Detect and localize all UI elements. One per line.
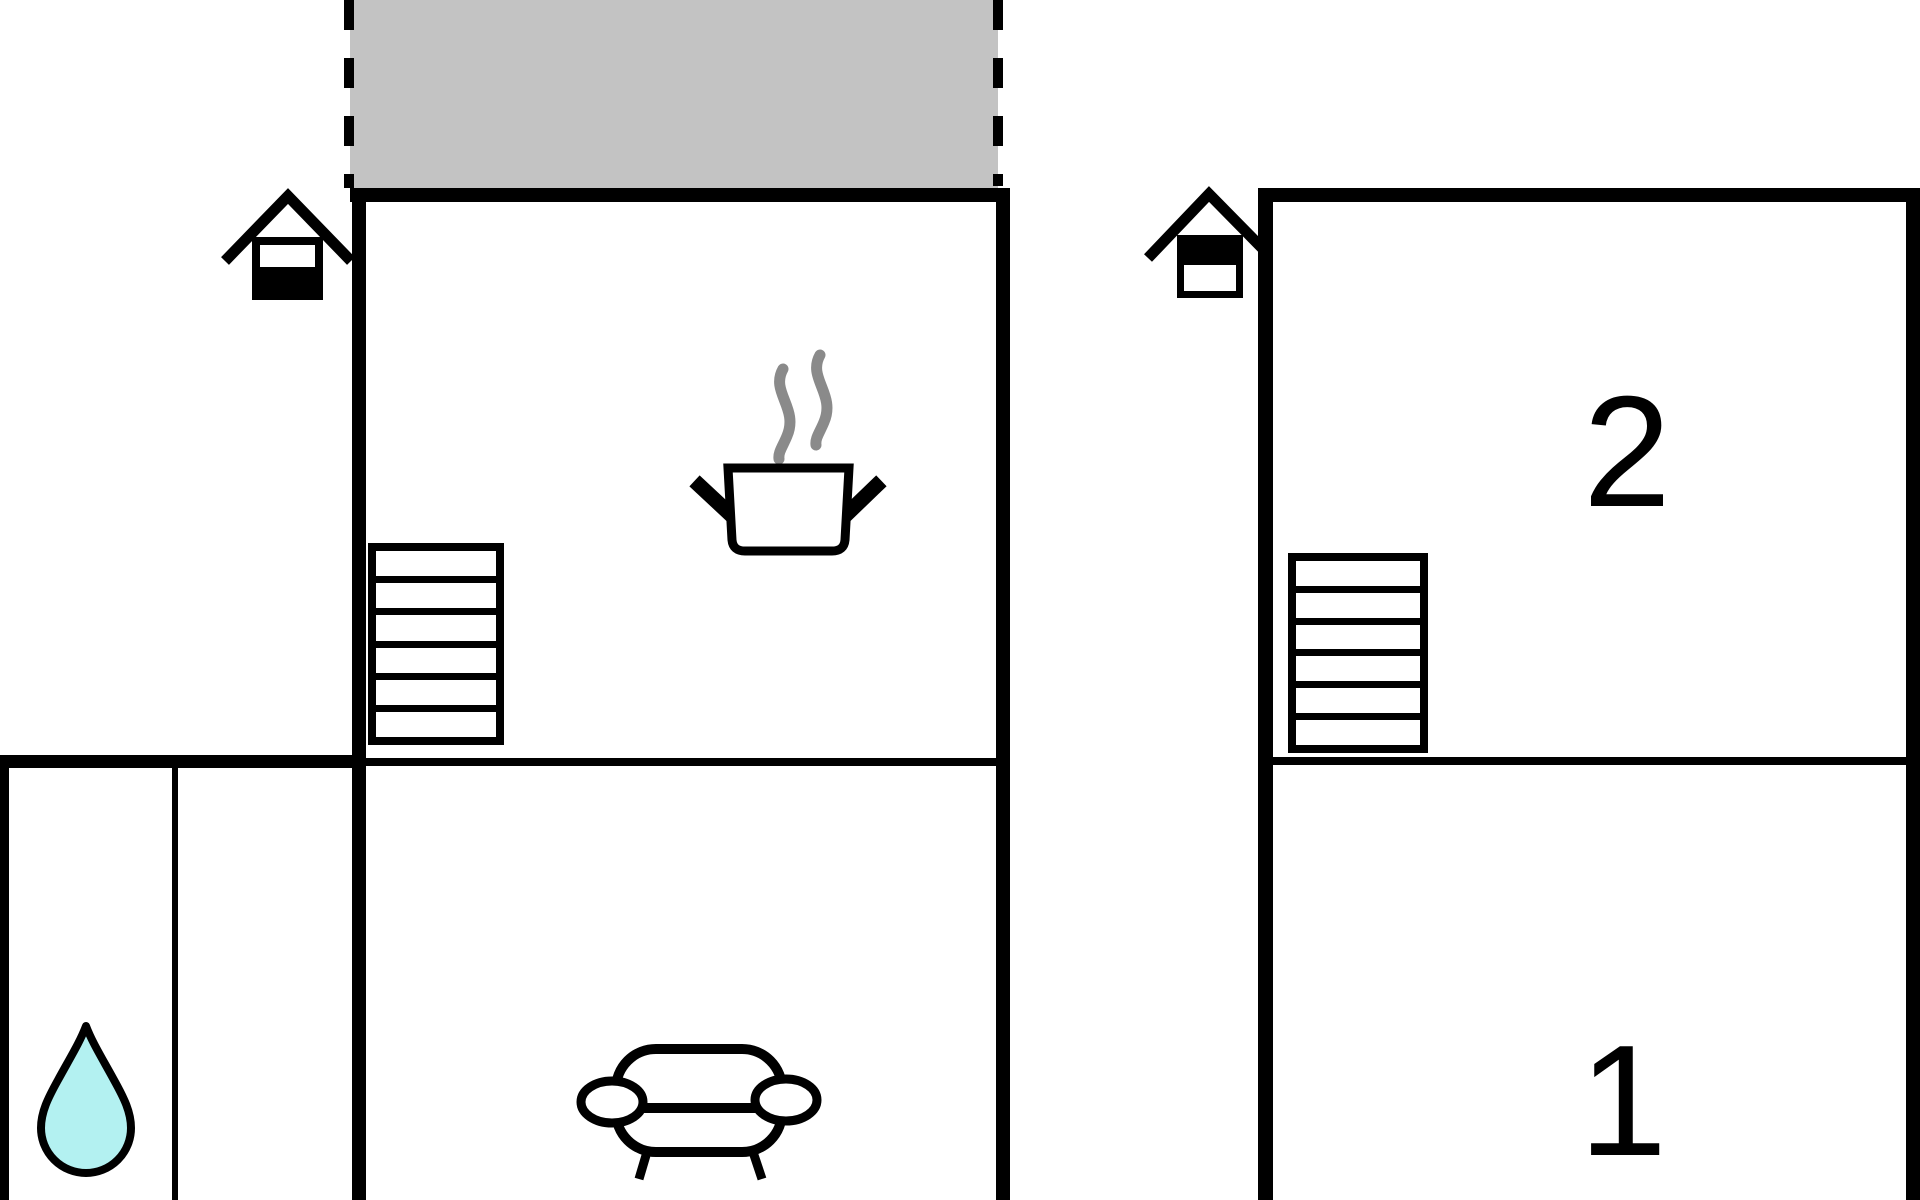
sofa-leg-right (753, 1152, 762, 1179)
steam-icon (779, 369, 790, 459)
left-building-floor-divider-wall (366, 758, 996, 766)
terrace-dashed-edge-right (993, 0, 1003, 186)
house-window (260, 245, 315, 267)
room-2-label: 2 (1547, 373, 1707, 531)
water-drop-icon (20, 1000, 150, 1190)
room-1-label: 1 (1543, 1022, 1703, 1180)
right-building-top-wall (1258, 188, 1920, 202)
cooking-pot-icon (680, 340, 900, 565)
right-building-west-wall (1258, 188, 1273, 1200)
stairs-icon-right (1288, 553, 1428, 753)
sofa-armrest-left (581, 1081, 643, 1123)
terrace-area (350, 0, 998, 188)
sofa-icon (560, 1030, 850, 1190)
right-building-east-wall (1906, 188, 1920, 1200)
entrance-house-icon-right (1140, 185, 1280, 305)
terrace-dashed-edge-left (344, 0, 354, 188)
sofa-armrest-right (755, 1079, 817, 1121)
house-window (1184, 265, 1236, 291)
pot-handle-right (849, 486, 876, 512)
annex-west-wall (0, 755, 9, 1200)
annex-divider-wall (172, 768, 178, 1200)
stairs-icon-left (368, 543, 504, 745)
floor-plan: 2 1 (0, 0, 1920, 1200)
left-building-top-wall (350, 188, 1010, 202)
left-building-west-wall (352, 188, 366, 1200)
water-drop-shape (41, 1026, 131, 1173)
entrance-house-icon-left (215, 185, 360, 310)
sofa-leg-left (639, 1152, 647, 1179)
pot-body (728, 468, 849, 551)
right-building-floor-divider-wall (1273, 757, 1906, 765)
annex-top-wall (0, 755, 366, 768)
left-building-east-wall (996, 188, 1010, 1200)
steam-icon (816, 355, 827, 445)
